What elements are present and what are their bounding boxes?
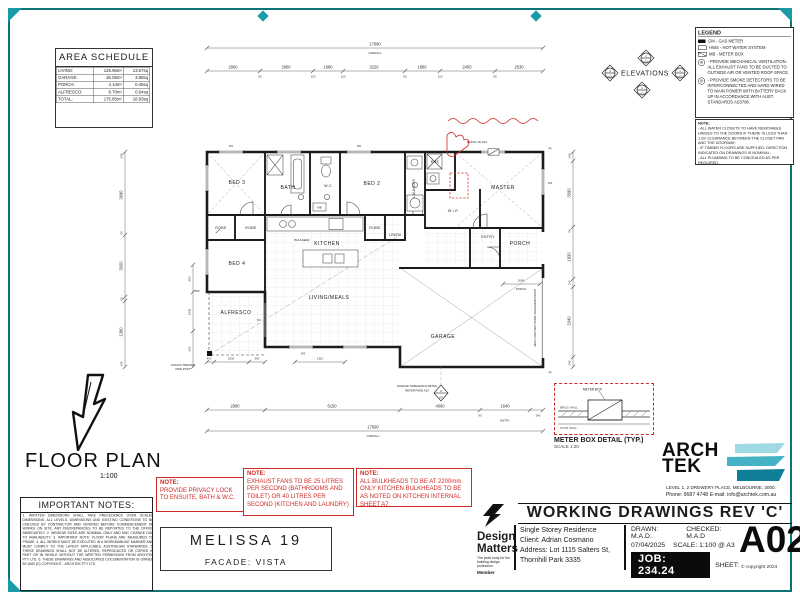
- vent-symbol-icon: ◎: [698, 59, 705, 66]
- corner-mark: [778, 8, 792, 22]
- dimension-label: 850: [188, 276, 192, 281]
- archtek-phone: Phone: 9687 4748 E-mail: info@archtek.co…: [648, 492, 794, 498]
- garage-door-label: 4800 x 2400 SECTIONAL OVERHEAD DOOR: [533, 289, 537, 347]
- dimension-label: 90: [120, 297, 124, 301]
- archtek-wordmark: ARCH TEK: [648, 443, 719, 474]
- dimension-label: 90: [478, 414, 482, 418]
- detail-ref-label: DETAIL ON A13: [467, 140, 487, 144]
- dimension-label: 2900: [281, 65, 291, 70]
- note-bulkheads: NOTE: ALL BULKHEADS TO BE AT 2200mm. ONL…: [356, 468, 472, 507]
- dimension-label: 110: [341, 75, 346, 79]
- room-label-robe: ROBE: [245, 226, 257, 230]
- dimension-label: 110: [311, 75, 316, 79]
- dimension-label: 1640: [500, 404, 510, 409]
- room-label-wir: W.I.R: [448, 209, 458, 213]
- dimension-label: 390: [255, 357, 260, 361]
- note-body: ALL BULKHEADS TO BE AT 2200mm. ONLY KITC…: [360, 479, 468, 510]
- dimension-label: 3000: [119, 261, 124, 271]
- legend-item: GM - GAS METER: [698, 39, 791, 44]
- project-client: Client: Adrian Cosmano: [520, 536, 620, 546]
- room-label-kitchen: KITCHEN: [314, 241, 339, 247]
- drawing-info: DRAWN: M.A.D. CHECKED: M.A.D 07/04/2025 …: [631, 526, 739, 578]
- legend-item: HWS - HOT WATER SYSTEM: [698, 45, 791, 50]
- garage-door: 4800 x 2400 SECTIONAL OVERHEAD DOOR: [533, 278, 545, 358]
- stud-wall-label: STUD WALL: [560, 426, 577, 430]
- dimension-label: 110: [568, 280, 572, 285]
- meter-box-detail-drawing: METER BOX BRICK WALL STUD WALL: [554, 383, 654, 435]
- sheet-number: A02: [739, 521, 795, 558]
- design-matters-block: Design Matters The peak body for the bui…: [477, 504, 515, 575]
- dimension-label: 240: [120, 361, 124, 366]
- downpipe-tag: dp: [548, 370, 552, 374]
- titleblock-divider: [624, 525, 626, 570]
- note-line: - ALL PLUMBING TO BE CONCEALED AS PER RE…: [698, 156, 791, 165]
- window-tag: W2: [357, 144, 362, 148]
- legend-vent-note: - PROVIDE MECHANICAL VENTILATION. ALL EX…: [708, 59, 792, 75]
- room-label-bath: BATH: [281, 185, 296, 191]
- hot-water-icon: [698, 46, 707, 51]
- legend-note-box: NOTE: - ALL WATER CLOSETS TO HAVE REMOVA…: [695, 119, 794, 165]
- design-matters-member: Member: [477, 570, 515, 575]
- north-arrow-icon: [40, 372, 130, 454]
- note-exhaust-fans: NOTE: EXHAUST FANS TO BE 25 LITRES PER S…: [243, 468, 354, 516]
- room-label-master: MASTER: [491, 185, 515, 191]
- dimension-label: 240: [568, 153, 572, 158]
- note-title: NOTE:: [160, 480, 242, 488]
- room-label-entry: ENTRY: [481, 235, 495, 239]
- gas-meter-icon: [698, 40, 706, 44]
- dimension-label: 17690: [369, 42, 381, 47]
- room-label-wc: W.C: [324, 184, 332, 188]
- floor-plan-title: FLOOR PLAN: [25, 450, 162, 473]
- legend-smoke-note: - PROVIDE SMOKE DETECTORS TO BE INTERCON…: [708, 77, 792, 104]
- design-matters-icon: [481, 504, 505, 527]
- legend-item-label: HWS - HOT WATER SYSTEM: [709, 45, 765, 50]
- sheet-label: SHEET:: [715, 562, 739, 569]
- room-label-living: LIVING/MEALS: [309, 295, 350, 301]
- note-title: NOTE:: [247, 471, 350, 479]
- dimension-label: 240: [120, 153, 124, 158]
- floor-plan-drawing: 4800 x 2400 SECTIONAL OVERHEAD DOOR: [95, 35, 615, 465]
- legend: LEGEND GM - GAS METER HWS - HOT WATER SY…: [695, 27, 794, 118]
- dimension-label: 110: [438, 75, 443, 79]
- corner-mark: [8, 8, 22, 22]
- dimension-label: 2440: [188, 308, 192, 315]
- area-name: LIVING:: [56, 67, 93, 74]
- dimension-label: 3220: [369, 65, 379, 70]
- dimension-label: 1310: [317, 357, 324, 361]
- dimension-label: 1380: [119, 327, 124, 337]
- dimension-label: 2900: [228, 65, 238, 70]
- archtek-icon: [725, 443, 787, 483]
- brick-wall-label: BRICK WALL: [560, 406, 578, 410]
- window-tag: W1: [229, 144, 234, 148]
- meter-detail-scale: SCALE 1:20: [554, 444, 654, 449]
- room-label-bed2: BED 2: [364, 181, 381, 187]
- note-body: PROVIDE PRIVACY LOCK TO ENSUITE, BATH & …: [160, 488, 242, 504]
- important-notes-body: 1. WRITTEN DIMENSIONS SHALL TAKE PRECEDE…: [21, 513, 153, 568]
- legend-title: LEGEND: [698, 30, 791, 38]
- room-label-linen: LINEN: [389, 233, 401, 237]
- dimension-label: 470: [207, 357, 212, 361]
- room-label-bed3: BED 3: [229, 180, 246, 186]
- dimension-label: 2530: [228, 357, 235, 361]
- meter-box-detail: METER BOX BRICK WALL STUD WALL METER BOX…: [554, 383, 654, 449]
- titleblock-divider: [514, 525, 516, 570]
- meter-box-label: METER BOX: [583, 388, 603, 392]
- important-notes: IMPORTANT NOTES: 1. WRITTEN DIMENSIONS S…: [20, 497, 153, 591]
- dimension-label: 2990: [230, 404, 240, 409]
- porch-opening: [541, 232, 545, 264]
- design-matters-line1: Design: [477, 532, 515, 544]
- area-name: GARAGE:: [56, 74, 93, 81]
- elevation-sheet: A3: [640, 92, 644, 96]
- room-label-robe: ROBE: [215, 226, 227, 230]
- dimension-label: 2530: [514, 65, 524, 70]
- checked-by: CHECKED: M.A.D: [686, 526, 739, 540]
- dimension-label: 3690: [119, 190, 124, 200]
- note-line: - ALL WATER CLOSETS TO HAVE REMOVABLE HI…: [698, 126, 791, 146]
- archtek-address: LEVEL 1, 2 DREWERY PLACE, MELBOURNE, 300…: [648, 485, 794, 490]
- room-label-laundry: LAUNDRY: [412, 178, 416, 198]
- threshold-note: GARAGE THRESHOLD DETAIL: [397, 384, 438, 388]
- room-label-ens: ENS: [431, 160, 440, 164]
- area-name: TOTAL:: [56, 96, 93, 103]
- design-matters-tagline: building design profession: [477, 560, 515, 568]
- elevation-sheet: A3: [644, 60, 648, 64]
- threshold-note: REFER PAGE A13: [405, 389, 429, 393]
- important-notes-title: IMPORTANT NOTES:: [21, 498, 152, 513]
- design-name-box: MELISSA 19: [160, 527, 332, 555]
- tap-label: TAP: [194, 289, 199, 293]
- legend-item: MB - METER BOX: [698, 52, 791, 57]
- smoke-detector-icon: ◎: [698, 77, 705, 84]
- legend-item-label: MB - METER BOX: [709, 52, 744, 57]
- legend-item: ◎ - PROVIDE MECHANICAL VENTILATION. ALL …: [698, 59, 791, 75]
- drawing-sheet: AREA SCHEDULE LIVING: 126.96m² 13.67sq G…: [0, 0, 800, 600]
- dimension-label: OVERALL: [368, 51, 382, 55]
- downpipe-tag: dp: [548, 146, 552, 150]
- section-letter: A: [440, 389, 442, 393]
- fold-mark: [530, 10, 541, 21]
- room-label-porch: PORCH: [510, 241, 531, 247]
- legend-item: ◎ - PROVIDE SMOKE DETECTORS TO BE INTERC…: [698, 77, 791, 104]
- archtek-logo-block: ARCH TEK LEVEL 1, 2 DREWERY PLACE, MELBO…: [648, 443, 794, 498]
- design-matters-line2: Matters: [477, 544, 515, 556]
- dimension-label: 90: [258, 75, 262, 79]
- dimension-label: 90: [403, 75, 407, 79]
- drawn-by: DRAWN: M.A.D.: [631, 526, 678, 540]
- window-tag: W4: [548, 181, 553, 185]
- dimension-label: 3590: [567, 188, 572, 198]
- room-label-bed4: BED 4: [229, 261, 246, 267]
- drawing-date: 07/04/2025: [631, 542, 665, 549]
- dimension-label: 1880: [417, 65, 427, 70]
- floor-plan-scale: 1:100: [100, 473, 118, 480]
- dimension-label: 240: [568, 360, 572, 365]
- area-name: ALFRESCO:: [56, 89, 93, 96]
- dimension-label: 4060: [435, 404, 445, 409]
- room-label-garage: GARAGE: [431, 334, 456, 340]
- post-note: PINE POST: [176, 367, 191, 371]
- project-info: Single Storey Residence Client: Adrian C…: [520, 526, 620, 567]
- fold-mark: [257, 10, 268, 21]
- copyright: © copyright 2024: [741, 565, 777, 570]
- note-body: EXHAUST FANS TO BE 25 LITRES PER SECOND …: [247, 479, 350, 510]
- dimension-label: 6150: [327, 404, 337, 409]
- project-address2: Thornhill Park 3335: [520, 556, 620, 566]
- dimension-label: 2040: [567, 316, 572, 326]
- note-line: - IF TIMBER FLOORS ARE SUPPLIED, DIRECTI…: [698, 146, 791, 156]
- dimension-label: PORCH: [516, 287, 526, 291]
- legend-item-label: GM - GAS METER: [708, 39, 743, 44]
- dimension-label: 17690: [367, 425, 379, 430]
- dimension-label: 90: [120, 231, 124, 235]
- project-address1: Address: Lot 1115 Salters St,: [520, 546, 620, 556]
- bulkhead-label: BULKHEAD: [294, 238, 309, 242]
- meter-box-icon: [698, 52, 707, 57]
- dimension-label: 2040: [518, 279, 525, 283]
- job-number: JOB: 234.24: [631, 552, 710, 578]
- dimension-label: 1680: [323, 65, 333, 70]
- dimension-label: 240: [536, 414, 541, 418]
- note-privacy-lock: NOTE: PROVIDE PRIVACY LOCK TO ENSUITE, B…: [156, 477, 246, 512]
- section-sheet: A3: [439, 396, 443, 400]
- dimension-label: OVERALL: [366, 434, 380, 438]
- facade-box: FACADE: VISTA: [160, 553, 332, 571]
- elevation-sheet: A3: [678, 75, 682, 79]
- meter-detail-title: METER BOX DETAIL (TYP.): [554, 437, 654, 444]
- window-tag: W3: [301, 352, 306, 356]
- project-type: Single Storey Residence: [520, 526, 620, 536]
- dimension-label: ENTRY: [500, 419, 510, 423]
- drawing-scale: SCALE: 1:100 @ A3: [673, 542, 735, 549]
- meter-box-label: MB: [317, 206, 321, 210]
- dimension-label: 90: [568, 229, 572, 233]
- area-name: PORCH:: [56, 81, 93, 88]
- dimension-label: 420: [188, 346, 192, 351]
- elevations-label: ELEVATIONS: [621, 71, 669, 78]
- dimension-label: 90: [493, 75, 497, 79]
- room-label-alfresco: ALFRESCO: [221, 310, 252, 316]
- note-title: NOTE:: [360, 471, 468, 479]
- dimension-label: 1930: [567, 252, 572, 262]
- room-label-robe: ROBE: [369, 226, 381, 230]
- dimension-label: 2450: [462, 65, 472, 70]
- door-tag: D3: [257, 318, 261, 322]
